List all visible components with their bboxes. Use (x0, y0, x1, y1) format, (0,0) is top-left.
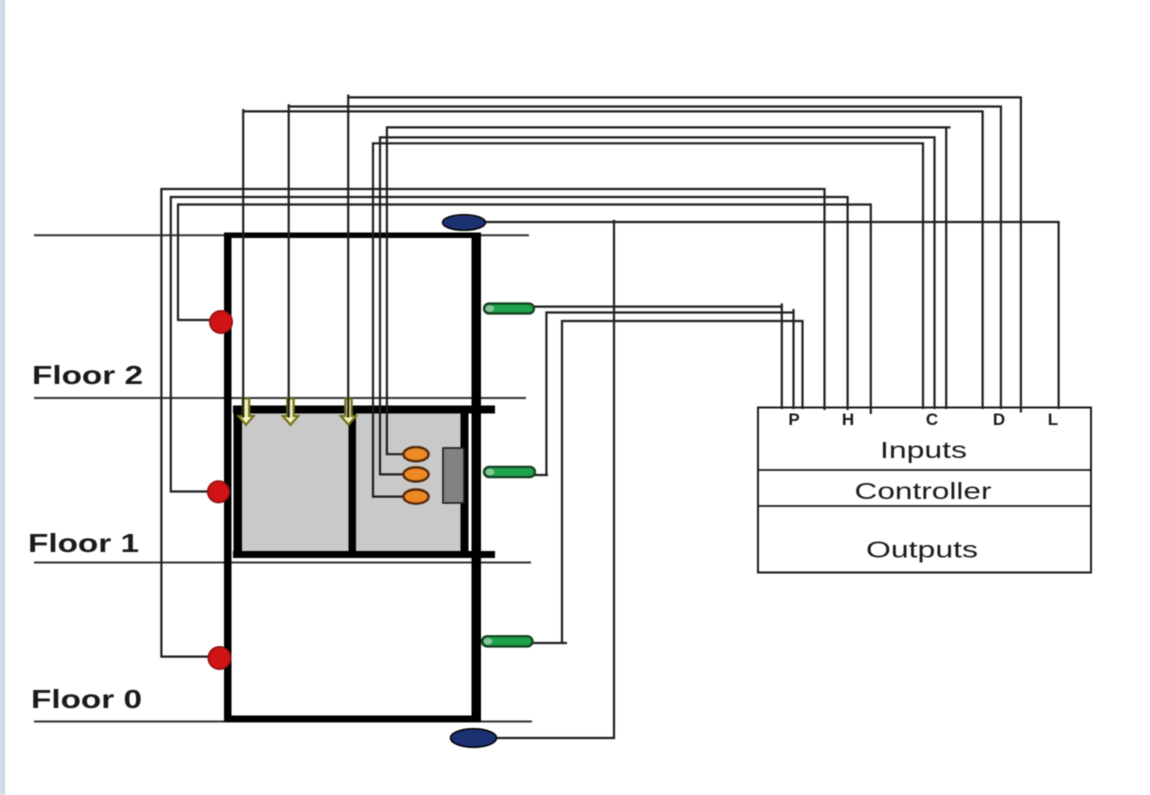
svg-text:H: H (842, 410, 854, 429)
svg-text:D: D (993, 410, 1005, 429)
svg-text:Floor 2: Floor 2 (32, 360, 143, 390)
svg-text:Floor 1: Floor 1 (28, 528, 139, 558)
svg-text:Inputs: Inputs (880, 437, 967, 463)
svg-text:C: C (926, 410, 938, 429)
svg-text:P: P (788, 410, 799, 429)
svg-text:Outputs: Outputs (866, 537, 978, 563)
svg-text:Floor 0: Floor 0 (31, 684, 142, 714)
svg-text:L: L (1048, 410, 1058, 429)
svg-text:Controller: Controller (855, 478, 992, 504)
